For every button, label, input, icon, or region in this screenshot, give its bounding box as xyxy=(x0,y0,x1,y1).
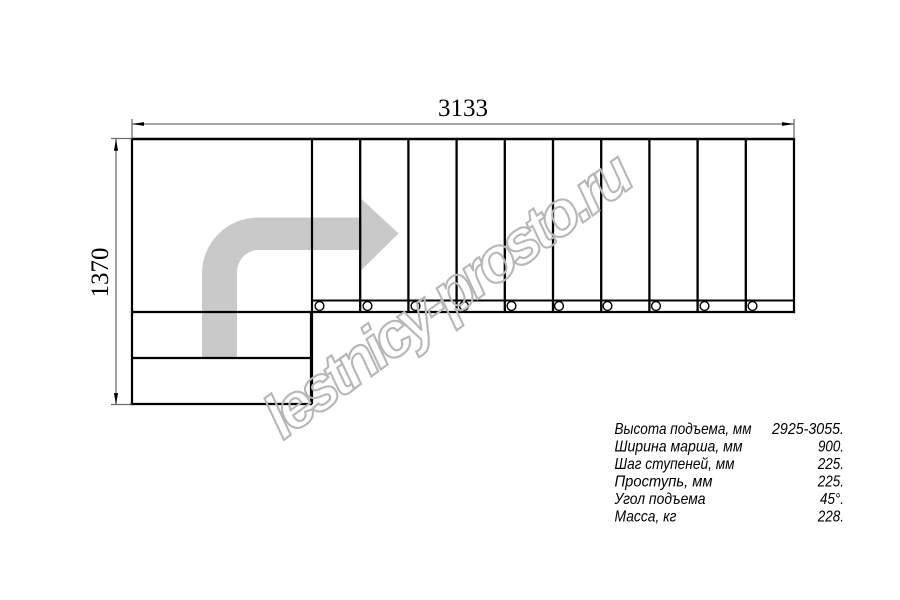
svg-text:45°.: 45°. xyxy=(820,491,844,508)
svg-text:1370: 1370 xyxy=(87,248,114,298)
svg-text:Угол подъема: Угол подъема xyxy=(614,491,706,508)
svg-text:2925-3055.: 2925-3055. xyxy=(771,421,844,438)
svg-text:Ширина марша, мм: Ширина марша, мм xyxy=(615,439,743,456)
svg-text:228.: 228. xyxy=(817,509,844,526)
svg-text:Шаг ступеней, мм: Шаг ступеней, мм xyxy=(615,456,735,473)
svg-text:900.: 900. xyxy=(818,439,844,456)
svg-text:Проступь, мм: Проступь, мм xyxy=(615,474,713,491)
svg-text:3133: 3133 xyxy=(438,95,488,122)
svg-text:Высота подъема, мм: Высота подъема, мм xyxy=(615,421,752,438)
svg-text:Масса, кг: Масса, кг xyxy=(615,509,677,526)
svg-text:225.: 225. xyxy=(817,456,844,473)
svg-text:225.: 225. xyxy=(817,474,844,491)
